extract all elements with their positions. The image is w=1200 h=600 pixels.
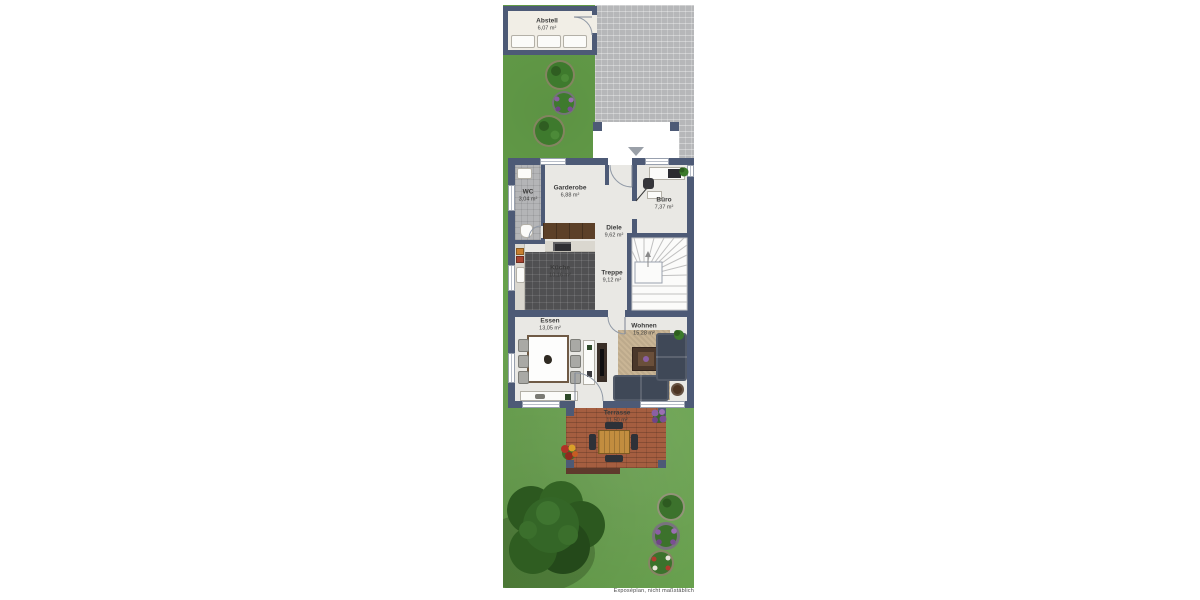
garden-bush-purple — [552, 91, 576, 115]
garden-bush-flowers — [648, 550, 674, 576]
room-label-abstell: Abstell 6,07 m² — [536, 18, 558, 33]
room-name: Büro — [656, 197, 671, 205]
room-label-essen: Essen 13,05 m² — [539, 318, 561, 333]
staircase — [632, 238, 687, 310]
terrace-flowerbed-purple — [652, 409, 667, 423]
room-label-diele: Diele 9,62 m² — [605, 225, 624, 240]
room-label-terrasse: Terrasse 11,50 m² — [604, 410, 631, 425]
room-name: Essen — [540, 318, 559, 326]
room-name: Terrasse — [604, 410, 631, 418]
room-name: Garderobe — [554, 185, 587, 193]
room-label-buero: Büro 7,37 m² — [655, 197, 674, 212]
room-area: 7,37 m² — [655, 205, 674, 212]
room-name: Küche — [550, 265, 570, 273]
plan-overlay — [503, 5, 694, 588]
room-area: 9,62 m² — [605, 233, 624, 240]
garden-bush — [533, 115, 565, 147]
room-area: 3,04 m² — [519, 197, 538, 204]
room-area: 10,16 m² — [549, 273, 571, 280]
room-label-treppe: Treppe 9,12 m² — [601, 270, 622, 285]
room-label-wohnen: Wohnen 15,28 m² — [631, 323, 657, 338]
buero-plant — [680, 168, 689, 177]
room-area: 6,88 m² — [561, 193, 580, 200]
plan-disclaimer: Exposéplan, nicht maßstäblich — [503, 588, 694, 594]
site-plan: Abstell 6,07 m² WC 3,04 m² Garderobe 6,8… — [503, 5, 694, 588]
floorplan-page: Abstell 6,07 m² WC 3,04 m² Garderobe 6,8… — [0, 0, 1200, 600]
tree — [503, 481, 605, 588]
room-area: 9,12 m² — [603, 278, 622, 285]
room-area: 6,07 m² — [538, 26, 557, 33]
room-label-wc: WC 3,04 m² — [519, 189, 538, 204]
room-area: 13,05 m² — [539, 326, 561, 333]
room-name: Treppe — [601, 270, 622, 278]
room-label-garderobe: Garderobe 6,88 m² — [554, 185, 587, 200]
room-name: Diele — [606, 225, 622, 233]
room-area: 15,28 m² — [633, 331, 655, 338]
room-name: Wohnen — [631, 323, 657, 331]
room-label-kueche: Küche 10,16 m² — [549, 265, 571, 280]
terrace-flowerbed — [561, 445, 578, 461]
garden-bush — [545, 60, 575, 90]
room-name: Abstell — [536, 18, 558, 26]
garden-bush — [657, 493, 685, 521]
room-area: 11,50 m² — [606, 418, 627, 425]
wohnen-plant — [674, 330, 684, 340]
room-name: WC — [523, 189, 534, 197]
garden-bush-purple — [652, 522, 680, 550]
